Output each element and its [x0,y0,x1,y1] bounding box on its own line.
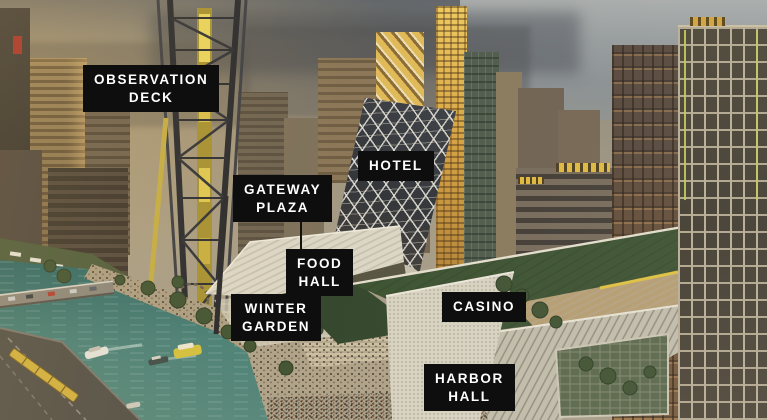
label-hotel: HOTEL [358,151,434,181]
grid-tower-rooftop-sign [690,17,726,26]
rendering-scene: OBSERVATION DECK HOTEL GATEWAY PLAZA FOO… [0,0,767,420]
ground-illustration [0,0,767,420]
label-food-hall: FOOD HALL [286,249,353,296]
grid-tower-right [678,25,767,420]
label-winter-garden: WINTER GARDEN [231,294,321,341]
label-harbor-hall: HARBOR HALL [424,364,515,411]
label-gateway-plaza: GATEWAY PLAZA [233,175,332,222]
grid-tower-accent-left [684,30,686,200]
grid-tower-accent-right [756,30,758,200]
label-casino: CASINO [442,292,526,322]
label-observation-deck: OBSERVATION DECK [83,65,219,112]
